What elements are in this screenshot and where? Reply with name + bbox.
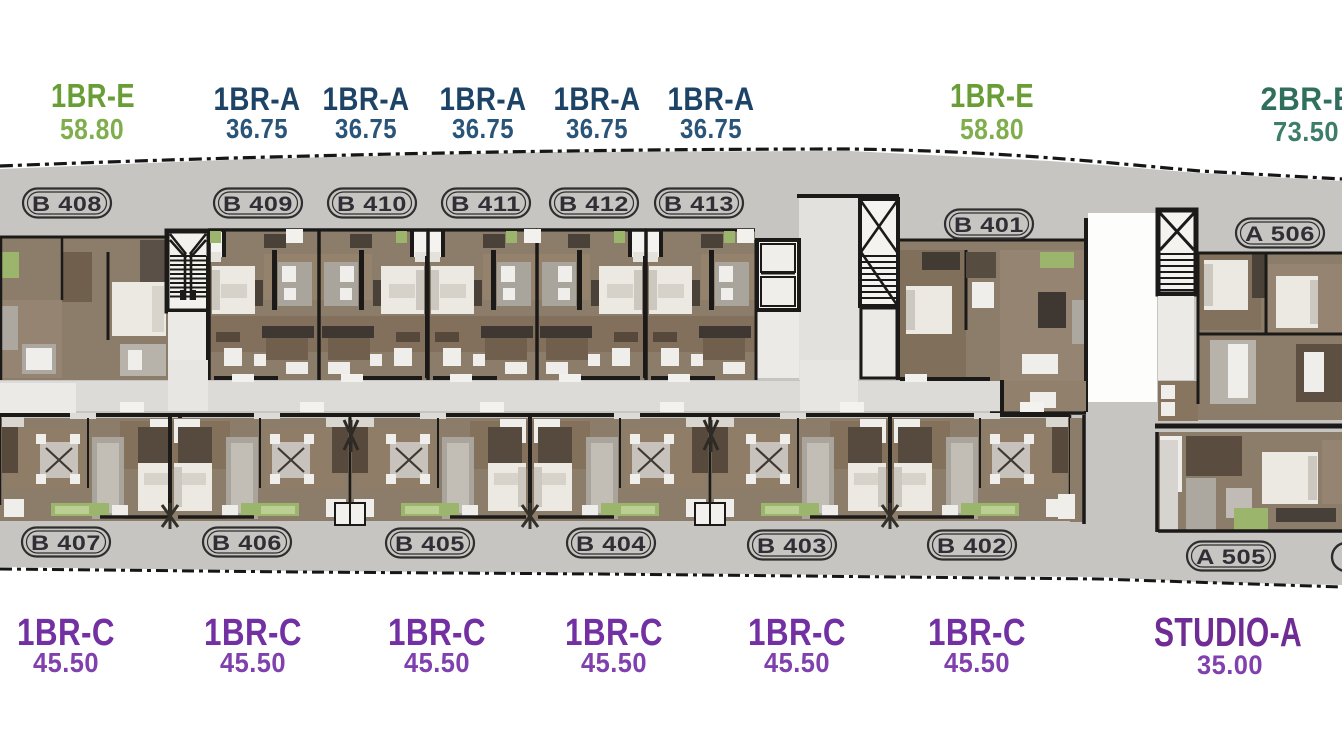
svg-text:36.75: 36.75 bbox=[566, 113, 628, 144]
svg-text:58.80: 58.80 bbox=[60, 114, 124, 146]
svg-text:B 409: B 409 bbox=[223, 193, 293, 216]
svg-text:45.50: 45.50 bbox=[944, 647, 1010, 678]
svg-text:1BR-A: 1BR-A bbox=[214, 81, 301, 117]
svg-text:45.50: 45.50 bbox=[764, 647, 830, 678]
svg-text:36.75: 36.75 bbox=[680, 113, 742, 144]
svg-text:1BR-A: 1BR-A bbox=[440, 81, 527, 117]
svg-text:B 410: B 410 bbox=[337, 193, 407, 216]
svg-text:B 405: B 405 bbox=[395, 533, 465, 556]
svg-text:1BR-E: 1BR-E bbox=[950, 77, 1034, 114]
svg-text:A 505: A 505 bbox=[1196, 546, 1266, 569]
svg-text:45.50: 45.50 bbox=[581, 647, 647, 678]
svg-text:STUDIO-A: STUDIO-A bbox=[1154, 609, 1302, 655]
svg-text:B 408: B 408 bbox=[32, 193, 102, 216]
svg-text:35.00: 35.00 bbox=[1197, 650, 1263, 680]
svg-text:B 401: B 401 bbox=[954, 214, 1024, 237]
svg-text:36.75: 36.75 bbox=[335, 113, 397, 144]
svg-text:1BR-A: 1BR-A bbox=[554, 81, 641, 117]
svg-text:1BR-A: 1BR-A bbox=[668, 81, 755, 117]
svg-text:73.50: 73.50 bbox=[1273, 116, 1339, 147]
svg-text:B 406: B 406 bbox=[212, 532, 282, 555]
svg-text:B 413: B 413 bbox=[664, 193, 734, 216]
svg-text:B 404: B 404 bbox=[576, 533, 646, 556]
svg-text:A 506: A 506 bbox=[1245, 223, 1315, 246]
svg-text:B 412: B 412 bbox=[559, 193, 629, 216]
svg-text:58.80: 58.80 bbox=[960, 114, 1024, 146]
svg-text:B 403: B 403 bbox=[757, 535, 827, 558]
svg-text:36.75: 36.75 bbox=[226, 113, 288, 144]
svg-text:B 402: B 402 bbox=[937, 535, 1007, 558]
svg-text:45.50: 45.50 bbox=[33, 647, 99, 678]
svg-text:45.50: 45.50 bbox=[404, 647, 470, 678]
svg-text:2BR-B: 2BR-B bbox=[1261, 81, 1342, 117]
svg-text:B 411: B 411 bbox=[451, 193, 521, 216]
svg-text:B 407: B 407 bbox=[31, 532, 101, 555]
svg-text:1BR-E: 1BR-E bbox=[51, 77, 135, 114]
svg-text:45.50: 45.50 bbox=[220, 647, 286, 678]
svg-text:36.75: 36.75 bbox=[452, 113, 514, 144]
svg-text:1BR-A: 1BR-A bbox=[323, 81, 410, 117]
